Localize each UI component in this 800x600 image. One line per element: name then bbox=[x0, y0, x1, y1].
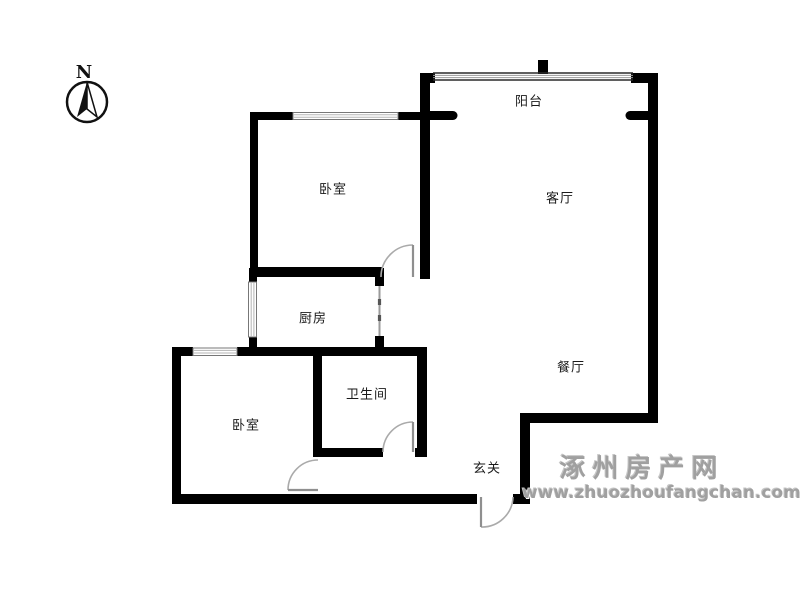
floorplan-canvas: N bbox=[0, 0, 800, 600]
door-arc bbox=[381, 245, 413, 277]
wall-bedroom-north-south bbox=[250, 267, 382, 277]
room-label-living-room: 客厅 bbox=[546, 188, 574, 207]
compass-north-letter: N bbox=[76, 62, 92, 83]
wall-segment bbox=[538, 60, 548, 74]
wall-bathroom-east bbox=[417, 348, 427, 457]
watermark-site-url: www.zhuozhoufangchan.com bbox=[522, 485, 762, 503]
door-arc bbox=[383, 422, 413, 452]
room-label-bathroom: 卫生间 bbox=[346, 384, 388, 403]
wall-bottom-exterior bbox=[172, 494, 477, 504]
wall-bathroom-south bbox=[313, 448, 383, 457]
door-arc bbox=[288, 460, 318, 490]
wall-living-west bbox=[420, 73, 430, 279]
wall-middle bbox=[237, 347, 427, 356]
compass-icon: N bbox=[67, 62, 107, 122]
room-label-entry-hall: 玄关 bbox=[473, 458, 501, 477]
watermark: 涿州房产网 www.zhuozhoufangchan.com bbox=[522, 456, 762, 503]
room-label-dining-room: 餐厅 bbox=[557, 357, 585, 376]
compass-needle-left bbox=[77, 82, 87, 117]
door-arc bbox=[481, 497, 513, 527]
window-kitchen bbox=[249, 282, 257, 337]
door-entrance bbox=[481, 497, 513, 527]
wall-right-exterior bbox=[648, 73, 658, 423]
wall-bedroom-north-west bbox=[250, 112, 258, 277]
door-bedroom-north bbox=[381, 245, 413, 277]
room-label-balcony: 阳台 bbox=[515, 91, 543, 110]
wall-segment bbox=[396, 112, 427, 120]
door-bathroom bbox=[383, 422, 413, 452]
door-bedroom-south bbox=[288, 460, 318, 490]
walls bbox=[172, 60, 658, 504]
wall-bathroom-west bbox=[313, 347, 322, 453]
wall-segment bbox=[375, 336, 384, 348]
room-label-bedroom-north: 卧室 bbox=[319, 179, 347, 198]
wall-segment bbox=[375, 268, 384, 286]
room-label-kitchen: 厨房 bbox=[299, 308, 327, 327]
window-bedroom-north bbox=[293, 113, 398, 120]
floorplan-svg: N bbox=[0, 0, 800, 600]
watermark-site-name: 涿州房产网 bbox=[522, 456, 762, 483]
window-bedroom-south bbox=[193, 348, 237, 356]
window-balcony bbox=[433, 73, 633, 80]
wall-dining-south bbox=[520, 413, 658, 423]
room-label-bedroom-south: 卧室 bbox=[232, 415, 260, 434]
compass-needle-right bbox=[87, 82, 97, 117]
wall-bedroom-south-west bbox=[172, 347, 181, 504]
